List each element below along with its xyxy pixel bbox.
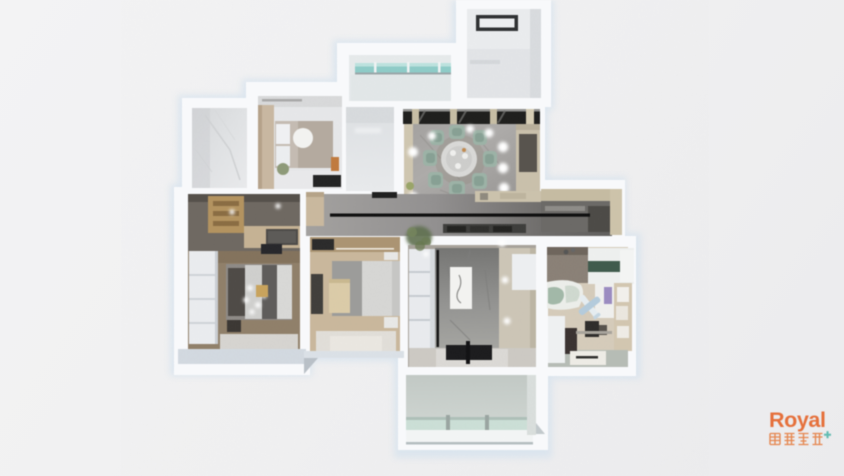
svg-text:Royal: Royal	[769, 408, 826, 432]
